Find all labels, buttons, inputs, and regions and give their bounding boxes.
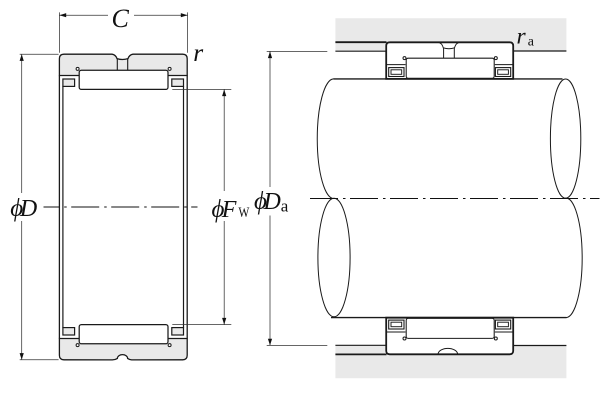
svg-text:r: r <box>517 23 527 49</box>
svg-text:W: W <box>238 205 250 221</box>
svg-text:a: a <box>528 35 535 50</box>
svg-text:D: D <box>263 189 281 215</box>
svg-text:C: C <box>112 4 130 33</box>
svg-text:a: a <box>281 197 289 216</box>
svg-text:r: r <box>193 38 203 67</box>
svg-text:F: F <box>221 197 237 223</box>
svg-text:D: D <box>19 196 37 222</box>
